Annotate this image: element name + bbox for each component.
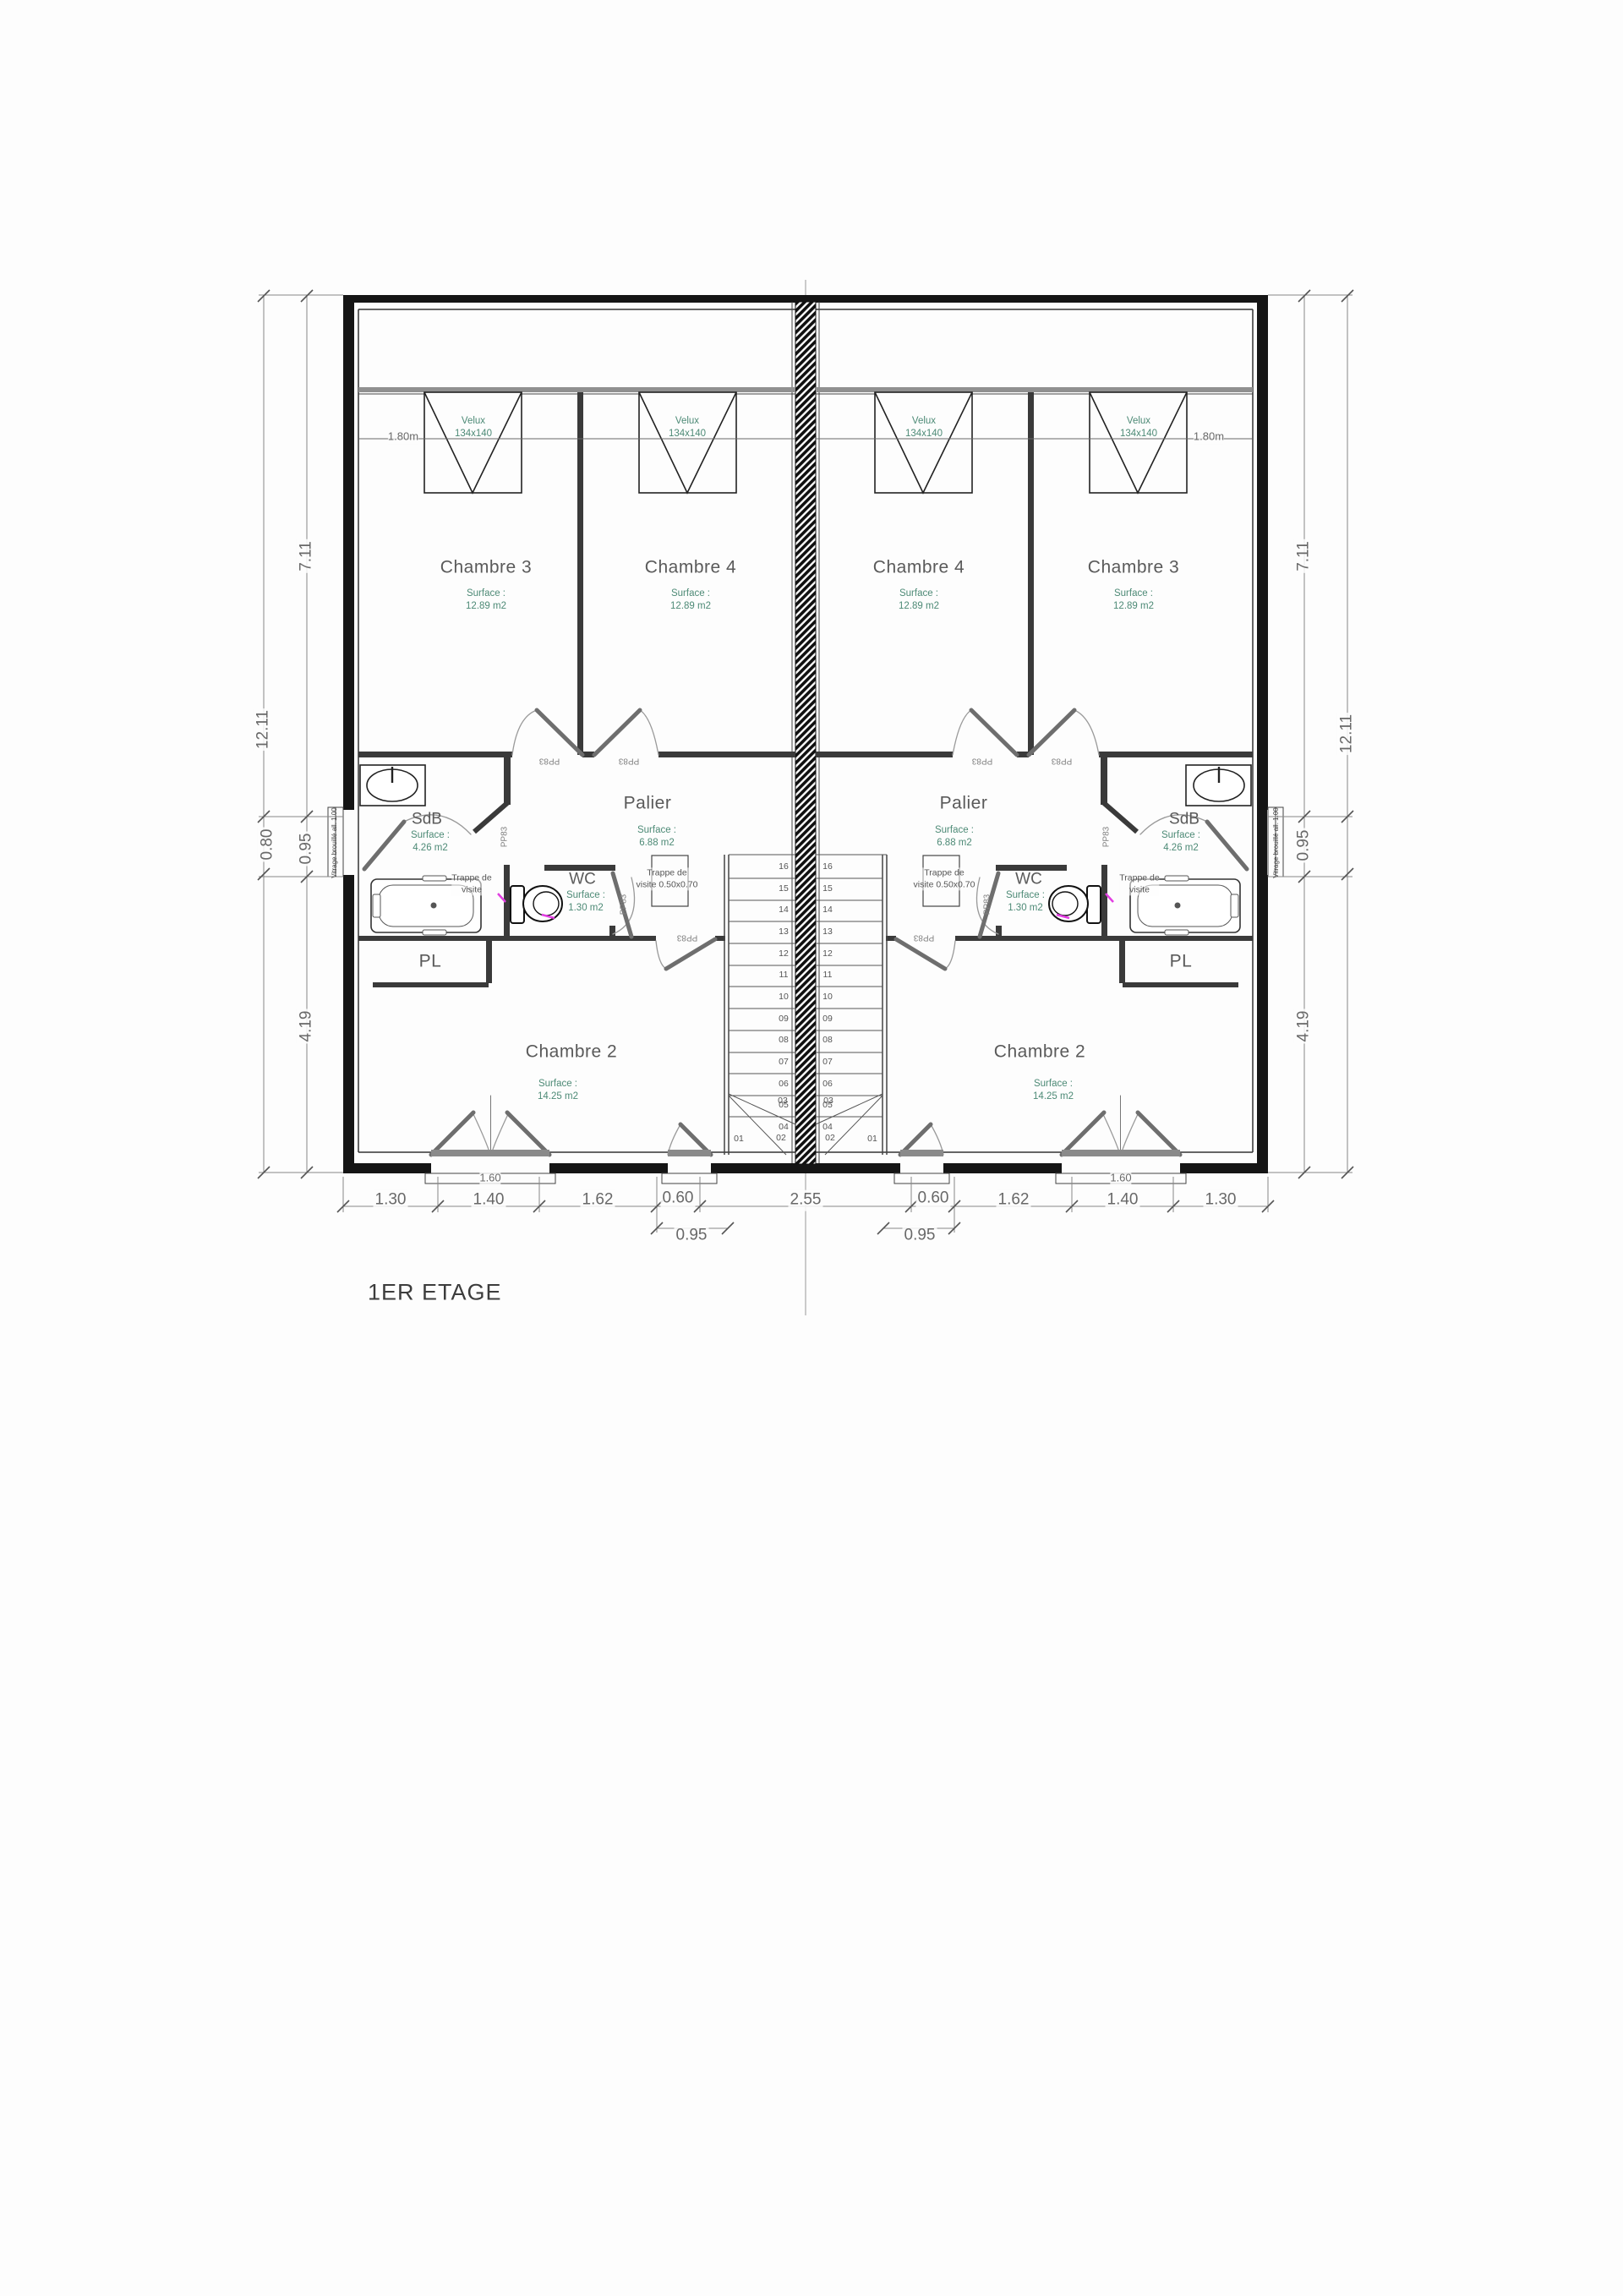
room-chambre4-left: Chambre 4 [645, 555, 736, 578]
room-sdb-right: SdB [1169, 810, 1199, 831]
room-chambre3-right: Chambre 3 [1088, 555, 1179, 578]
surface-wc-left: Surface : 1.30 m2 [566, 889, 605, 915]
door-tag-wc-right: PP83 [982, 894, 993, 915]
stair-tread-number-left: 16 [779, 861, 789, 873]
stair-tread-number-right: 12 [822, 948, 833, 960]
stair-tread-number-right: 04 [822, 1122, 833, 1134]
window-note-left: Vitrage brouillé all. 1.00 [331, 807, 339, 877]
stair-tread-number-right: 09 [822, 1014, 833, 1025]
velux-label-2: Velux 134x140 [669, 415, 706, 440]
stair-tread-number-right: 13 [822, 927, 833, 938]
dim-bottom-1-62-r: 1.62 [997, 1190, 1031, 1211]
stair-tread-number-right: 14 [822, 905, 833, 916]
dim-bottom-1-40-l: 1.40 [472, 1190, 506, 1211]
stair-tread-number-left: 08 [779, 1035, 789, 1047]
surface-wc-right: Surface : 1.30 m2 [1006, 889, 1045, 915]
door-tag-wc-left: PP83 [619, 894, 630, 915]
surface-chambre4-right: Surface : 12.89 m2 [899, 588, 939, 613]
stair-tread-number-left: 15 [779, 883, 789, 895]
sink-icon [1186, 765, 1251, 806]
stair-tread-number-left: 05 [779, 1100, 789, 1112]
surface-chambre3-left: Surface : 12.89 m2 [466, 588, 506, 613]
velux-label-1: Velux 134x140 [455, 415, 492, 440]
stair-tread-number-left: 04 [779, 1122, 789, 1134]
room-palier-right: Palier [940, 791, 988, 814]
stair-tread-number-left: 11 [779, 970, 789, 981]
party-wall [792, 302, 819, 1164]
dim-right-0-95: 0.95 [1294, 828, 1315, 863]
dim-bottom-0-95-l: 0.95 [675, 1226, 709, 1247]
stair-tread-number-right: 07 [822, 1057, 833, 1069]
dim-bottom-1-30-r: 1.30 [1204, 1190, 1238, 1211]
stair-tread-number-right: 16 [822, 861, 833, 873]
door-tag-ch2-right: PP83 [914, 932, 934, 943]
trappe-mid-label-left: Trappe de visite 0.50x0.70 [637, 867, 698, 890]
dim-left-0-95: 0.95 [297, 832, 318, 866]
stair-tread-number-right: 05 [822, 1100, 833, 1112]
stair-tread-number-right: 10 [822, 992, 833, 1003]
room-sdb-left: SdB [412, 810, 442, 831]
surface-sdb-right: Surface : 4.26 m2 [1161, 829, 1200, 855]
stair-tread-number-left: 12 [779, 948, 789, 960]
stair-tread-number-right: 15 [822, 883, 833, 895]
sink-icon [360, 765, 425, 806]
stair-tread-number-left: 06 [779, 1079, 789, 1091]
window-width-left: 1.60 [479, 1172, 500, 1186]
stair-tread-number-left: 07 [779, 1057, 789, 1069]
velux-icon [424, 392, 522, 493]
dim-right-12-11: 12.11 [1337, 713, 1358, 755]
dim-bottom-0-60-l: 0.60 [661, 1189, 696, 1210]
velux-label-4: Velux 134x140 [1120, 415, 1157, 440]
dim-right-7-11: 7.11 [1294, 539, 1315, 573]
dim-bottom-1-40-r: 1.40 [1106, 1190, 1140, 1211]
window-note-right: Vitrage brouillé all. 1.00 [1272, 807, 1281, 877]
dim-right-4-19: 4.19 [1294, 1009, 1315, 1044]
velux-icon [875, 392, 972, 493]
door-tag-sdb-left: PP83 [500, 827, 511, 847]
velux-icon [639, 392, 736, 493]
plan-title: 1ER ETAGE [368, 1277, 502, 1307]
dim-bottom-1-62-l: 1.62 [581, 1190, 615, 1211]
door-tag-ch2-left: PP83 [677, 932, 697, 943]
winder-right-01: 01 [867, 1134, 877, 1145]
velux-icon [1090, 392, 1187, 493]
stair-tread-number-right: 11 [823, 970, 833, 981]
room-wc-left: WC [569, 870, 596, 891]
dim-bottom-2-55: 2.55 [789, 1190, 823, 1211]
surface-chambre4-left: Surface : 12.89 m2 [670, 588, 711, 613]
dim-bottom-0-95-r: 0.95 [903, 1226, 937, 1247]
trappe-label-right: Trappe de visite [1119, 872, 1159, 895]
window-width-right: 1.60 [1110, 1172, 1131, 1186]
room-pl-right: PL [1170, 949, 1193, 972]
door-tag-ch4-right: PP83 [972, 756, 992, 767]
dim-left-7-11: 7.11 [297, 539, 318, 573]
trappe-mid-label-right: Trappe de visite 0.50x0.70 [914, 867, 975, 890]
stair-tread-number-right: 08 [822, 1035, 833, 1047]
room-chambre2-left: Chambre 2 [526, 1040, 617, 1063]
door-tag-ch3-right: PP83 [1052, 756, 1072, 767]
stair-tread-number-left: 10 [779, 992, 789, 1003]
door-tag-sdb-right: PP83 [1101, 827, 1112, 847]
surface-chambre2-right: Surface : 14.25 m2 [1033, 1078, 1074, 1103]
surface-sdb-left: Surface : 4.26 m2 [411, 829, 450, 855]
winder-right-02: 02 [825, 1133, 835, 1145]
trappe-label-left: Trappe de visite [451, 872, 491, 895]
floor-plan-drawing [0, 0, 1623, 1353]
height-line-label-left: 1.80m [388, 430, 418, 445]
winder-left-01: 01 [734, 1134, 744, 1145]
stair-tread-number-left: 09 [779, 1014, 789, 1025]
room-chambre2-right: Chambre 2 [994, 1040, 1085, 1063]
door-tag-ch3-left: PP83 [539, 756, 560, 767]
stair-tread-number-left: 13 [779, 927, 789, 938]
room-wc-right: WC [1015, 870, 1042, 891]
height-line-label-right: 1.80m [1194, 430, 1224, 445]
velux-label-3: Velux 134x140 [905, 415, 943, 440]
door-tag-ch4-left: PP83 [619, 756, 639, 767]
surface-palier-right: Surface : 6.88 m2 [935, 824, 974, 850]
dim-bottom-1-30-l: 1.30 [374, 1190, 408, 1211]
surface-chambre2-left: Surface : 14.25 m2 [538, 1078, 578, 1103]
dim-left-12-11: 12.11 [254, 708, 275, 751]
dim-left-4-19: 4.19 [297, 1009, 318, 1044]
surface-chambre3-right: Surface : 12.89 m2 [1113, 588, 1154, 613]
stair-tread-number-left: 14 [779, 905, 789, 916]
dim-bottom-0-60-r: 0.60 [916, 1189, 951, 1210]
room-chambre3-left: Chambre 3 [440, 555, 532, 578]
room-pl-left: PL [419, 949, 442, 972]
surface-palier-left: Surface : 6.88 m2 [637, 824, 676, 850]
stair-tread-number-right: 06 [822, 1079, 833, 1091]
winder-left-02: 02 [776, 1133, 786, 1145]
room-chambre4-right: Chambre 4 [873, 555, 965, 578]
floor-plan-canvas: Velux 134x140Velux 134x140Velux 134x140V… [0, 0, 1623, 2296]
dim-left-0-80: 0.80 [258, 828, 279, 862]
room-palier-left: Palier [624, 791, 672, 814]
